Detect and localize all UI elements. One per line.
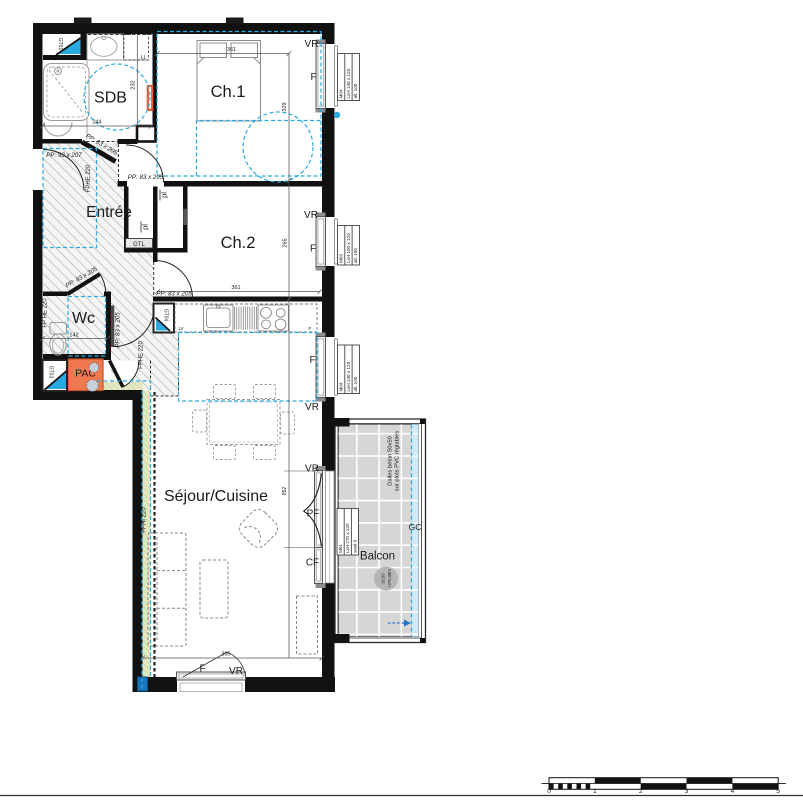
svg-text:FPHE 220: FPHE 220 bbox=[139, 341, 145, 369]
svg-text:LxH 100 x 120: LxH 100 x 120 bbox=[346, 233, 351, 263]
svg-text:pl: pl bbox=[140, 224, 149, 230]
svg-text:LL: LL bbox=[141, 55, 147, 61]
svg-text:GT01: GT01 bbox=[57, 38, 63, 51]
svg-text:329: 329 bbox=[282, 102, 288, 111]
svg-text:GT04: GT04 bbox=[163, 309, 169, 322]
svg-text:Séjour/Cuisine: Séjour/Cuisine bbox=[164, 488, 268, 505]
svg-text:GTL: GTL bbox=[133, 242, 145, 248]
svg-text:PP: 83 x 205: PP: 83 x 205 bbox=[128, 174, 164, 181]
svg-text:M01: M01 bbox=[338, 544, 343, 553]
svg-text:SDB: SDB bbox=[94, 90, 127, 107]
svg-text:265: 265 bbox=[283, 238, 289, 247]
svg-text:pl: pl bbox=[159, 192, 168, 198]
svg-text:FP HE 220: FP HE 220 bbox=[42, 298, 48, 328]
svg-text:VR: VR bbox=[305, 402, 319, 413]
svg-text:all. 100: all. 100 bbox=[353, 248, 358, 263]
svg-text:361: 361 bbox=[227, 47, 236, 53]
svg-text:Balcon: Balcon bbox=[360, 551, 395, 563]
svg-text:LV: LV bbox=[179, 326, 184, 331]
svg-text:+276,08m: +276,08m bbox=[387, 569, 392, 588]
svg-text:Entrée: Entrée bbox=[86, 204, 132, 221]
svg-text:VR: VR bbox=[305, 464, 319, 475]
svg-text:PF: PF bbox=[307, 509, 320, 520]
svg-text:FPHE 220: FPHE 220 bbox=[86, 164, 92, 192]
svg-text:4: 4 bbox=[731, 788, 735, 795]
svg-text:all. 100: all. 100 bbox=[353, 83, 358, 98]
svg-text:F: F bbox=[309, 326, 312, 331]
svg-text:2: 2 bbox=[639, 788, 643, 795]
svg-text:LxH 270 x 220: LxH 270 x 220 bbox=[345, 523, 350, 553]
svg-text:0: 0 bbox=[547, 788, 551, 795]
svg-text:232: 232 bbox=[130, 80, 136, 89]
svg-text:GC: GC bbox=[409, 522, 422, 532]
svg-text:361: 361 bbox=[231, 285, 240, 291]
svg-text:Ch.2: Ch.2 bbox=[221, 234, 256, 252]
svg-text:GT03: GT03 bbox=[48, 366, 54, 379]
svg-text:244: 244 bbox=[92, 120, 101, 126]
svg-text:3: 3 bbox=[685, 788, 689, 795]
svg-text:395: 395 bbox=[221, 652, 230, 658]
svg-text:sur plots PVC réglables: sur plots PVC réglables bbox=[395, 431, 401, 492]
svg-text:F: F bbox=[310, 244, 316, 255]
svg-text:1: 1 bbox=[593, 788, 597, 795]
svg-text:VR: VR bbox=[304, 210, 318, 221]
svg-text:M03: M03 bbox=[339, 254, 344, 263]
svg-text:F: F bbox=[309, 355, 315, 366]
svg-text:LxH 140 x 120: LxH 140 x 120 bbox=[346, 68, 351, 98]
svg-text:M04: M04 bbox=[339, 382, 344, 391]
svg-text:Ch.1: Ch.1 bbox=[211, 83, 246, 101]
svg-text:seuil 0: seuil 0 bbox=[352, 539, 357, 553]
svg-text:Dalles béton 50x50: Dalles béton 50x50 bbox=[388, 436, 394, 486]
svg-text:PP: 83 x 205: PP: 83 x 205 bbox=[156, 291, 192, 298]
svg-text:F: F bbox=[310, 72, 316, 83]
svg-text:PP: 83 x 205: PP: 83 x 205 bbox=[114, 312, 121, 348]
svg-text:VR: VR bbox=[229, 666, 243, 677]
svg-text:LxH 140 x 120: LxH 140 x 120 bbox=[346, 361, 351, 391]
svg-text:F: F bbox=[199, 664, 205, 675]
svg-text:VR: VR bbox=[305, 39, 319, 50]
svg-text:±0,00: ±0,00 bbox=[381, 573, 386, 584]
svg-text:PP: 93 x 207: PP: 93 x 207 bbox=[46, 152, 82, 159]
svg-text:142: 142 bbox=[69, 333, 78, 339]
svg-text:all. 100: all. 100 bbox=[353, 376, 358, 391]
svg-text:852: 852 bbox=[282, 487, 288, 496]
svg-text:5: 5 bbox=[776, 788, 780, 795]
svg-text:Wc: Wc bbox=[72, 310, 95, 327]
svg-text:M04: M04 bbox=[339, 89, 344, 98]
svg-text:CF: CF bbox=[306, 558, 319, 569]
